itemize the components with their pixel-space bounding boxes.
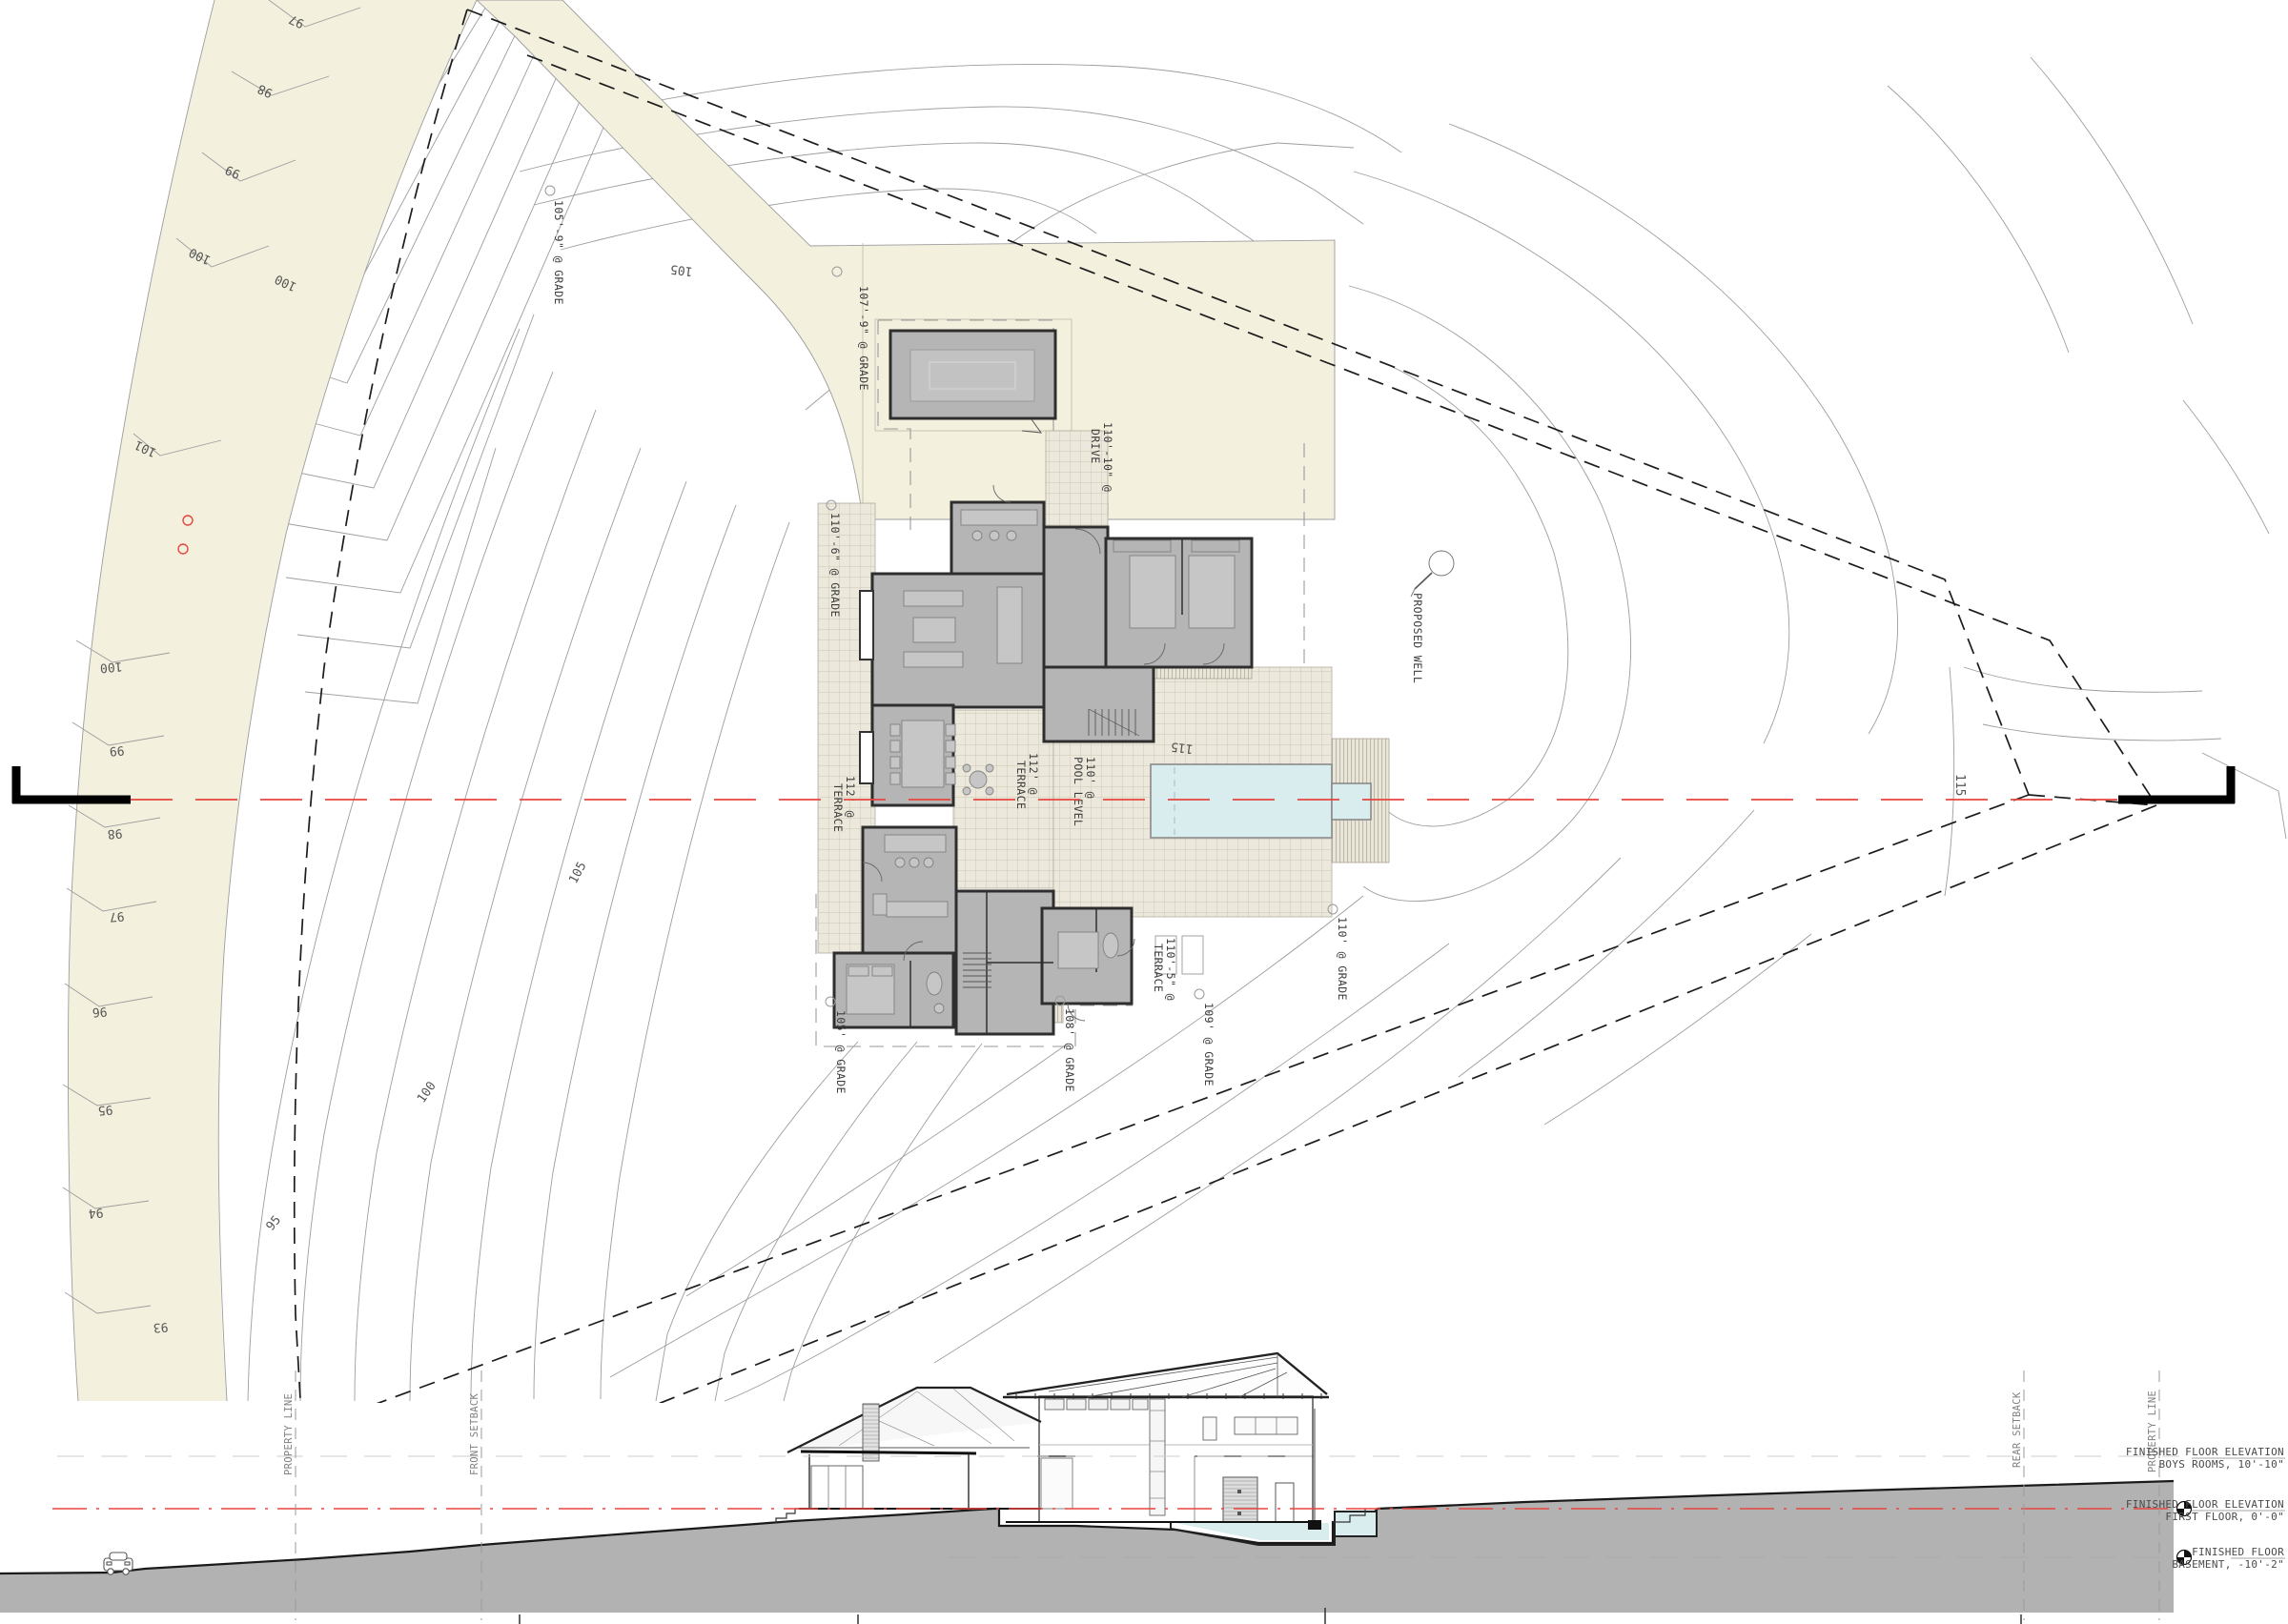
level-label-0-line1: FINISHED FLOOR ELEVATION [2126,1446,2284,1458]
grade-label-9: 108' @ GRADE [1063,1008,1076,1092]
ref-label-2: REAR SETBACK [2012,1391,2023,1468]
sofa [904,591,963,606]
level-label-0-line2: BOYS ROOMS, 10'-10" [2158,1458,2284,1471]
driveway-court [477,0,1335,519]
planter-2 [1182,936,1203,974]
level-label-2-line2: BASEMENT, -10'-2" [2172,1558,2284,1571]
section-marker-right [2118,766,2235,803]
grade-label-4b: TERRACE [831,783,845,832]
contour-label: 99 [109,742,125,758]
contour-label: 115 [1952,774,1967,796]
tub-sw [927,972,942,995]
entry-hall [1044,527,1108,667]
kitchen-counter [961,510,1037,525]
grade-label-1: 107'-9" @ GRADE [857,286,870,391]
contour-label: 94 [88,1205,104,1220]
architectural-drawing-sheet: 97 98 99 100 101 100 99 98 97 96 95 94 9… [0,0,2288,1624]
bay-window-2 [860,732,873,783]
contour-label: 97 [109,908,125,924]
ref-label-3: PROPERTY LINE [2147,1391,2158,1472]
contour-label: 96 [92,1004,108,1019]
ref-label-1: FRONT SETBACK [469,1393,480,1475]
coffee-table [913,618,955,642]
grade-label-7b: TERRACE [1152,944,1165,992]
grade-label-2b: DRIVE [1089,429,1102,464]
road-surface [68,0,477,1401]
pool-water [1151,764,1332,838]
contour-label: 115 [1170,739,1194,756]
drive-surface [477,0,1335,519]
level-label-1-line2: FIRST FLOOR, 0'-0" [2165,1511,2284,1523]
grade-label-2: 110'-10" @ [1101,422,1114,492]
media-console [885,835,946,852]
section-building [776,1353,1365,1530]
grade-label-4: 112' @ [844,776,857,818]
site-plan: 97 98 99 100 101 100 99 98 97 96 95 94 9… [12,0,2286,1549]
contour-label: 98 [107,825,123,841]
bed-east-1 [1130,556,1175,628]
contour-label: 95 [97,1102,113,1117]
road [63,0,477,1401]
contour-label: 93 [153,1319,169,1334]
contour-label: 105 [669,261,693,278]
stair-hall [1044,667,1154,741]
grade-label-7: 110'-5" @ [1164,938,1177,1001]
level-label-2-line1: FINISHED FLOOR [2192,1546,2284,1558]
grade-label-6: 110' @ [1084,757,1097,799]
level-label-1-line1: FINISHED FLOOR ELEVATION [2126,1498,2284,1511]
grade-label-3: 110'-6" @ GRADE [828,513,842,618]
grade-label-5: 112' @ [1027,753,1040,795]
spa [1332,783,1371,820]
contour-label: 95 [264,1213,285,1234]
grade-label-11: 110' @ GRADE [1336,917,1349,1001]
bed-se [1058,932,1098,968]
grade-label-0: 105'-9" @ GRADE [552,200,565,305]
bed-east-2 [1189,556,1235,628]
island [997,587,1022,663]
well-label: PROPOSED WELL [1411,593,1424,683]
site-section: PROPERTY LINE FRONT SETBACK REAR SETBACK… [0,1353,2285,1624]
bay-window-1 [860,591,873,660]
ref-label-0: PROPERTY LINE [283,1393,295,1475]
sofa-2 [904,652,963,667]
grade-label-6b: POOL LEVEL [1072,757,1085,826]
grade-label-5b: TERRACE [1014,761,1028,809]
contour-label: 100 [99,659,123,675]
proposed-well [1411,551,1454,597]
contour-label: 105 [566,860,589,886]
canopy [801,1451,976,1453]
terrace-table [970,771,987,788]
dining-table [902,721,944,787]
grade-label-10: 109' @ GRADE [1202,1003,1215,1086]
contour-label: 100 [415,1079,439,1106]
tub-se [1103,933,1118,958]
family-sofa [887,902,948,917]
grade-label-8: 105' @ GRADE [834,1010,848,1094]
